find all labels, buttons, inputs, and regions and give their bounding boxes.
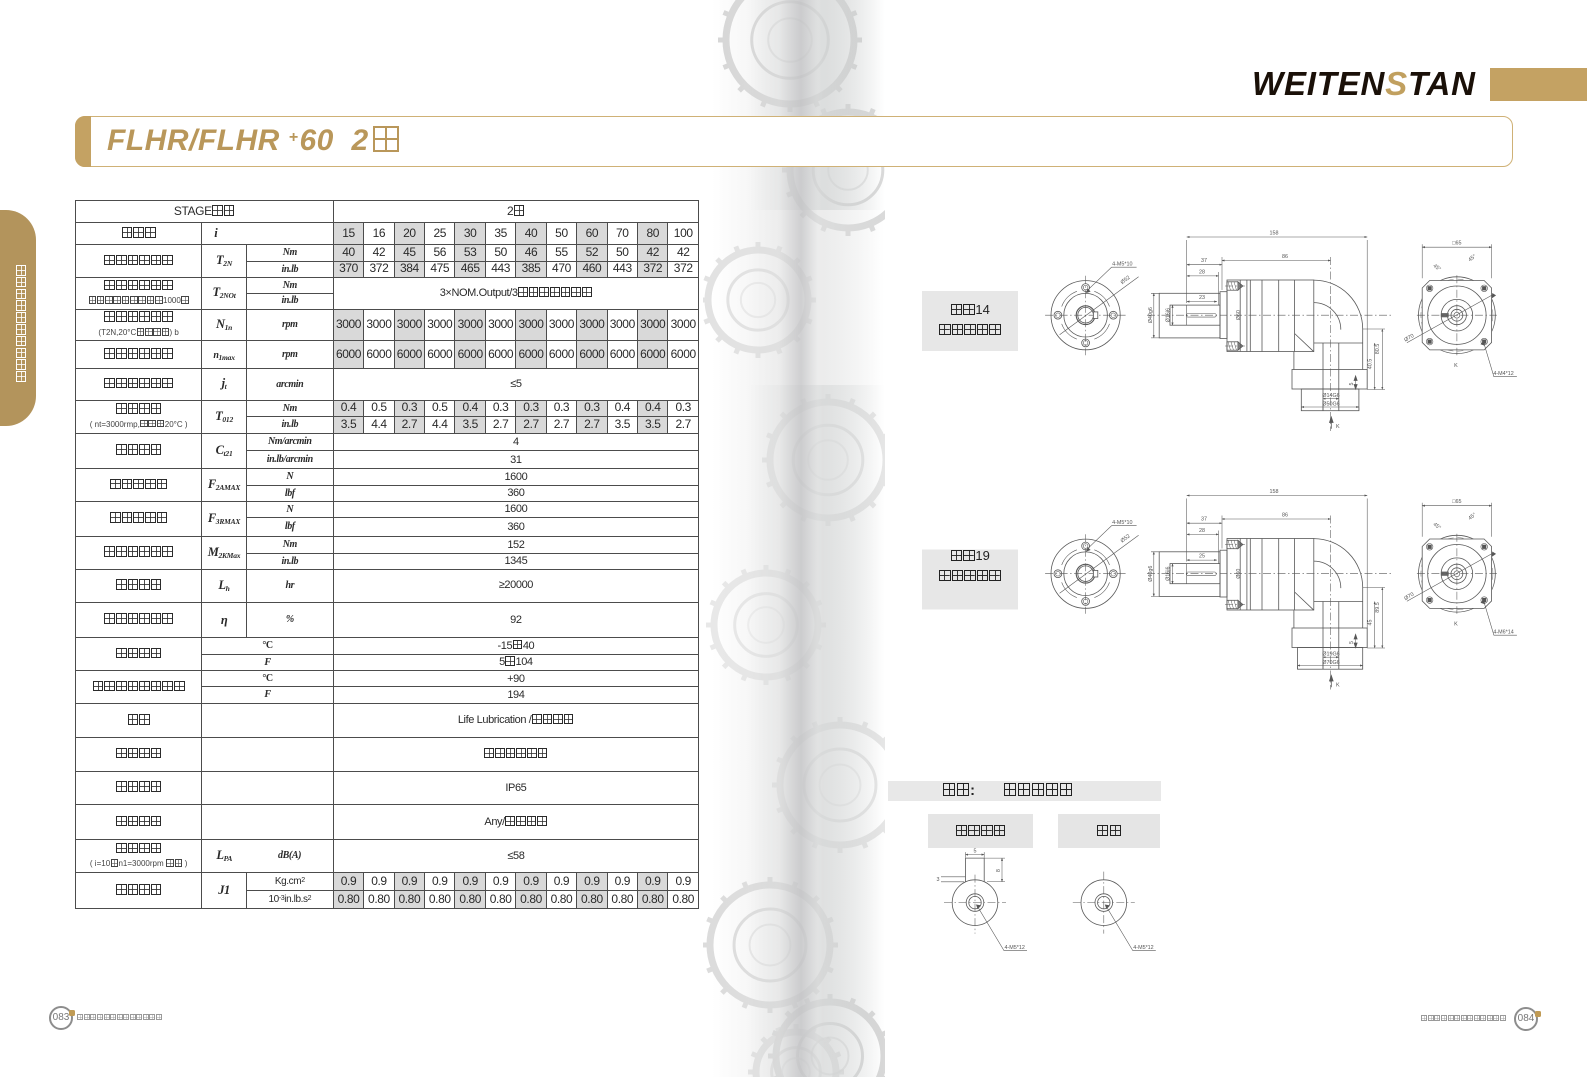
svg-text:8: 8 xyxy=(996,869,1002,872)
svg-text:4-M5*10: 4-M5*10 xyxy=(1112,261,1132,267)
svg-text:4-M4*12: 4-M4*12 xyxy=(1493,371,1513,377)
svg-text:Ø60: Ø60 xyxy=(1236,310,1242,320)
svg-text:Ø50G6: Ø50G6 xyxy=(1322,401,1339,407)
svg-text:23: 23 xyxy=(1199,295,1205,301)
svg-text:Ø52: Ø52 xyxy=(1120,275,1132,286)
svg-text:Ø70G6: Ø70G6 xyxy=(1322,660,1339,666)
svg-text:4-M5*10: 4-M5*10 xyxy=(1112,520,1132,526)
svg-text:158: 158 xyxy=(1270,231,1279,237)
svg-text:□65: □65 xyxy=(1452,241,1461,247)
svg-text:Ø19G6: Ø19G6 xyxy=(1322,651,1339,657)
svg-text:45°: 45° xyxy=(1432,263,1442,273)
svg-text:K: K xyxy=(1454,363,1458,369)
svg-text:86: 86 xyxy=(1282,254,1288,260)
svg-text:Ø70: Ø70 xyxy=(1403,333,1415,343)
svg-text:Ø16j6: Ø16j6 xyxy=(1166,308,1172,322)
svg-text:158: 158 xyxy=(1270,489,1279,495)
svg-text:Ø14G6: Ø14G6 xyxy=(1322,393,1339,399)
svg-text:28: 28 xyxy=(1199,269,1205,275)
svg-text:K: K xyxy=(1336,683,1340,689)
svg-text:4-M5*12: 4-M5*12 xyxy=(1133,945,1153,951)
svg-text:Ø60: Ø60 xyxy=(1236,569,1242,579)
svg-text:K: K xyxy=(1454,622,1458,628)
svg-text:Ø52: Ø52 xyxy=(1120,533,1132,544)
svg-text:45°: 45° xyxy=(1467,512,1477,522)
svg-text:28: 28 xyxy=(1199,528,1205,534)
svg-text:45°: 45° xyxy=(1467,254,1477,264)
svg-text:25: 25 xyxy=(1199,554,1205,560)
svg-text:□65: □65 xyxy=(1452,499,1461,505)
svg-text:Ø40g6: Ø40g6 xyxy=(1148,566,1154,582)
svg-text:5: 5 xyxy=(974,849,977,855)
svg-text:37: 37 xyxy=(1201,258,1207,264)
svg-text:89.5: 89.5 xyxy=(1375,602,1381,613)
svg-text:Ø70: Ø70 xyxy=(1403,592,1415,602)
svg-text:4-M6*14: 4-M6*14 xyxy=(1493,630,1513,636)
svg-text:37: 37 xyxy=(1201,517,1207,523)
svg-text:45: 45 xyxy=(1367,620,1373,626)
svg-text:86: 86 xyxy=(1282,513,1288,519)
svg-text:45°: 45° xyxy=(1432,522,1442,532)
svg-text:Ø16j6: Ø16j6 xyxy=(1166,567,1172,581)
svg-text:5: 5 xyxy=(1349,383,1355,386)
svg-text:Ø40g6: Ø40g6 xyxy=(1148,307,1154,323)
svg-text:K: K xyxy=(1336,424,1340,430)
svg-text:3: 3 xyxy=(937,877,940,883)
svg-text:40.5: 40.5 xyxy=(1367,359,1373,370)
svg-text:80.5: 80.5 xyxy=(1375,344,1381,355)
svg-text:5: 5 xyxy=(1349,641,1355,644)
svg-text:4-M5*12: 4-M5*12 xyxy=(1005,945,1025,951)
